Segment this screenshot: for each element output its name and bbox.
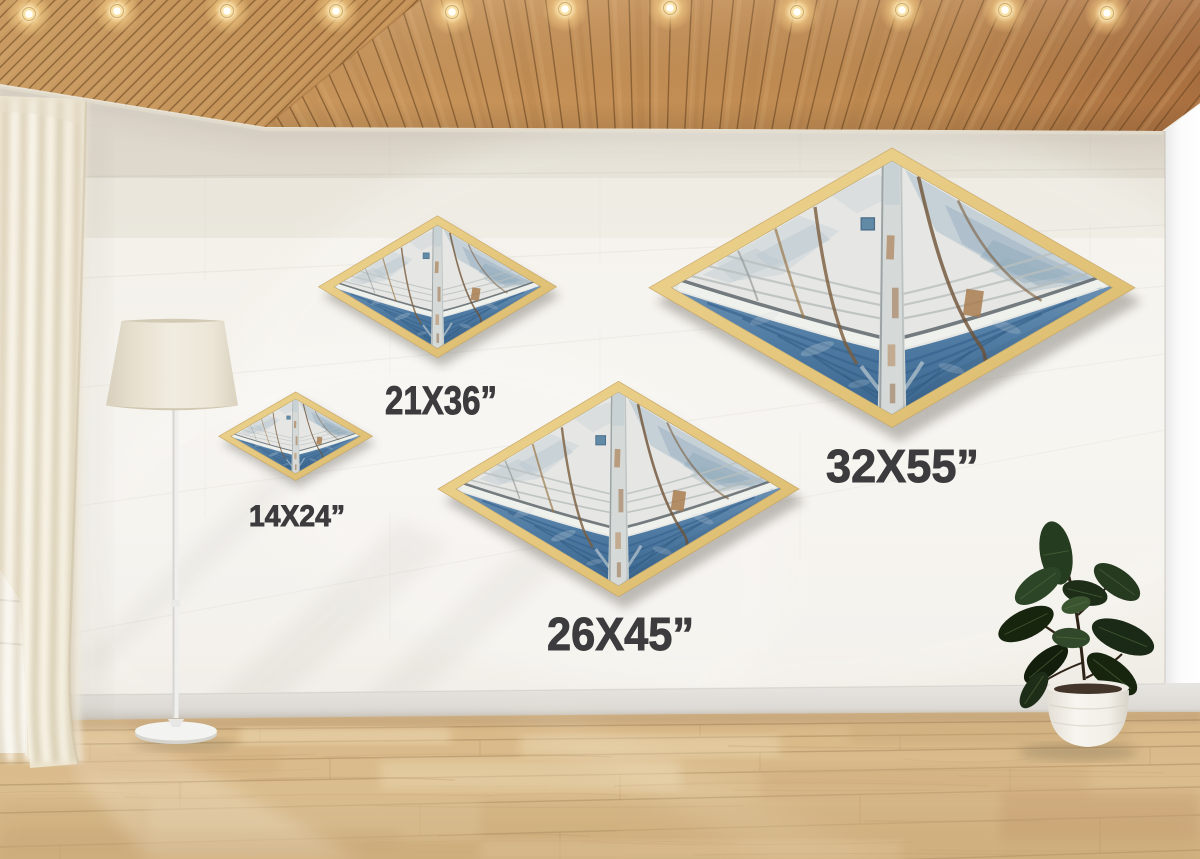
svg-text:32X55”: 32X55” [826, 440, 979, 492]
svg-text:14X24”: 14X24” [249, 500, 345, 533]
svg-text:21X36”: 21X36” [385, 379, 497, 423]
svg-text:26X45”: 26X45” [547, 608, 694, 660]
